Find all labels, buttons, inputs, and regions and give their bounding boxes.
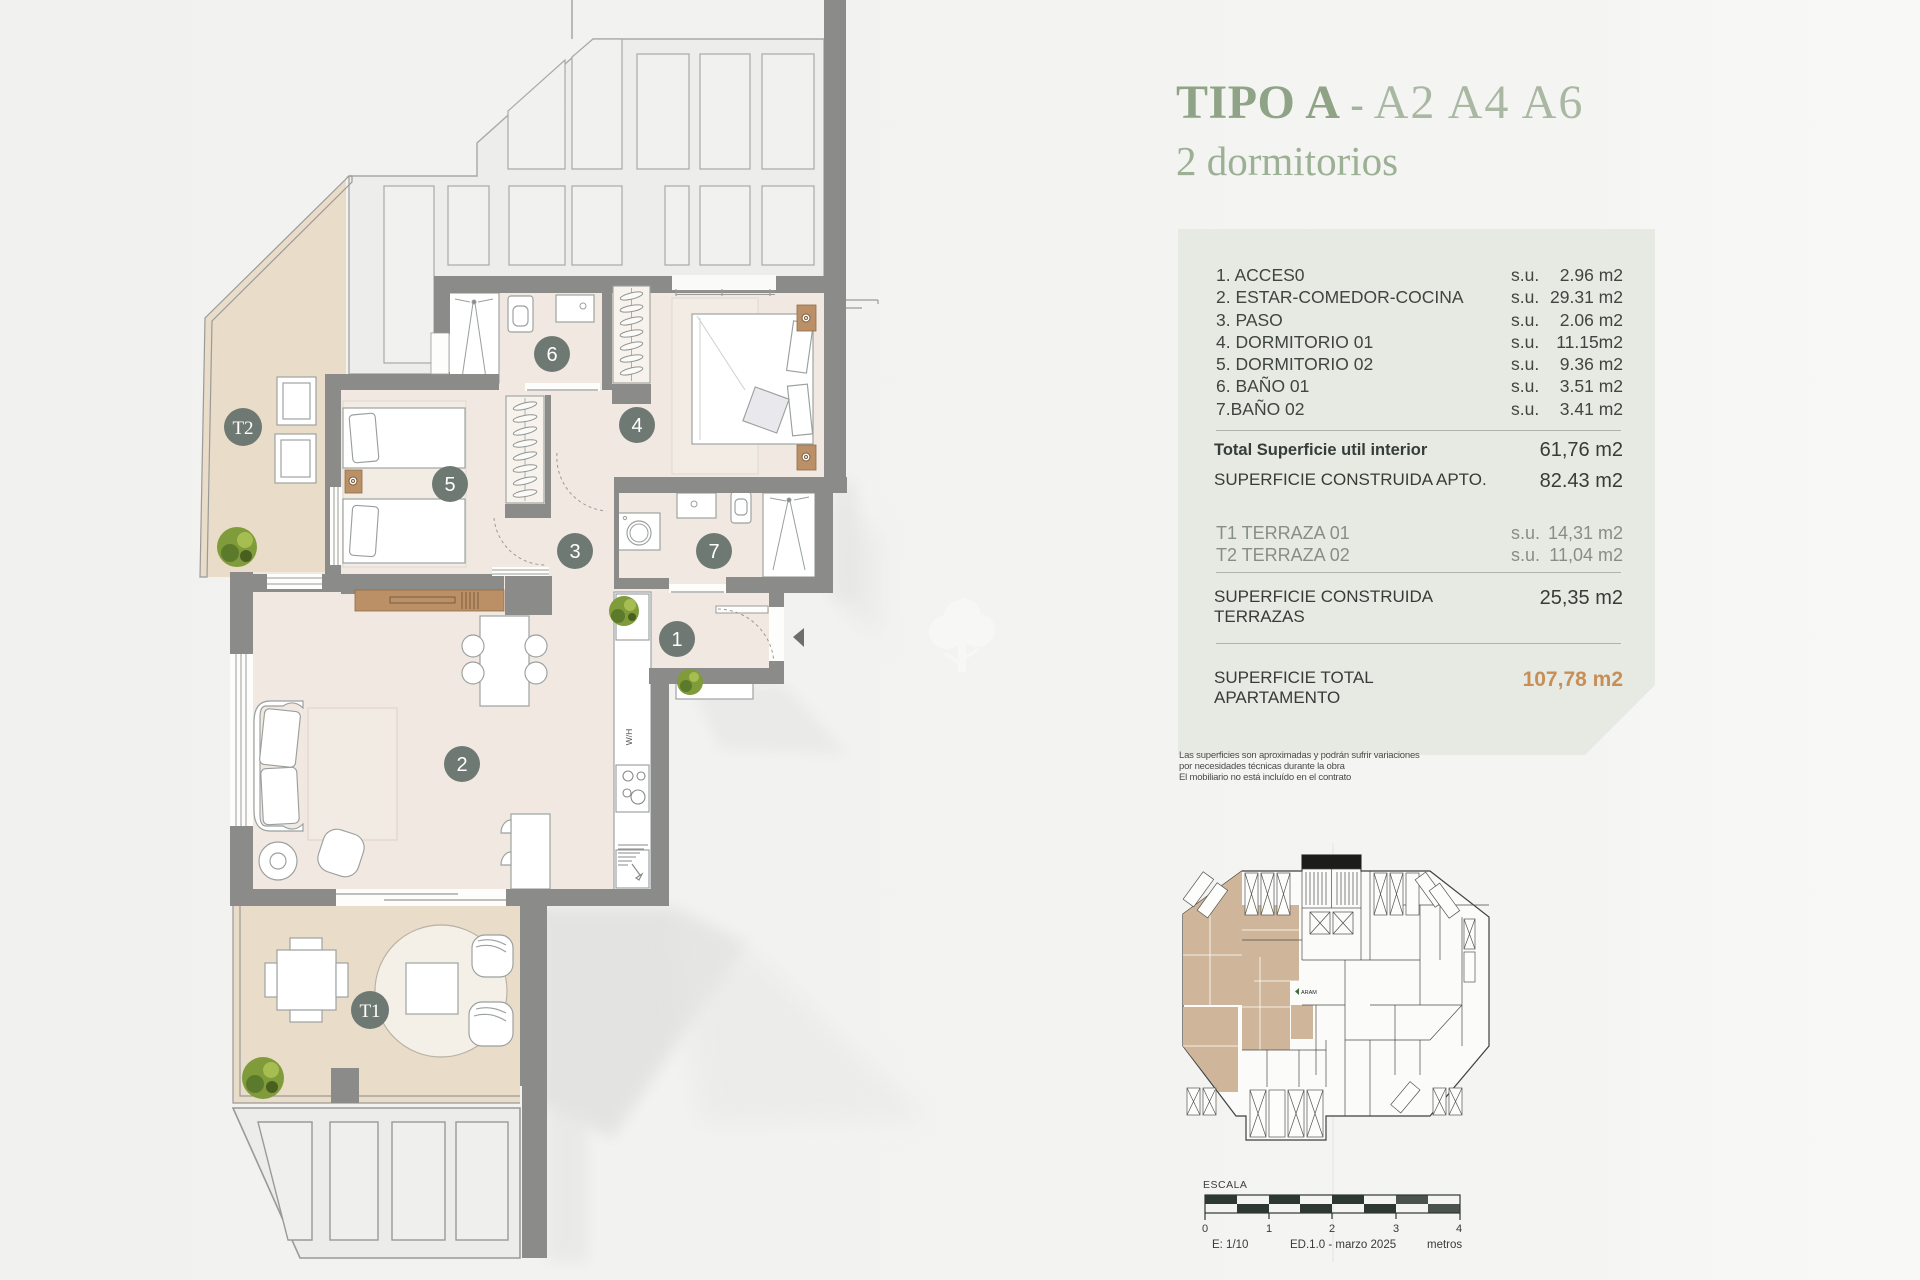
svg-text:ARAM: ARAM [1301,990,1317,996]
